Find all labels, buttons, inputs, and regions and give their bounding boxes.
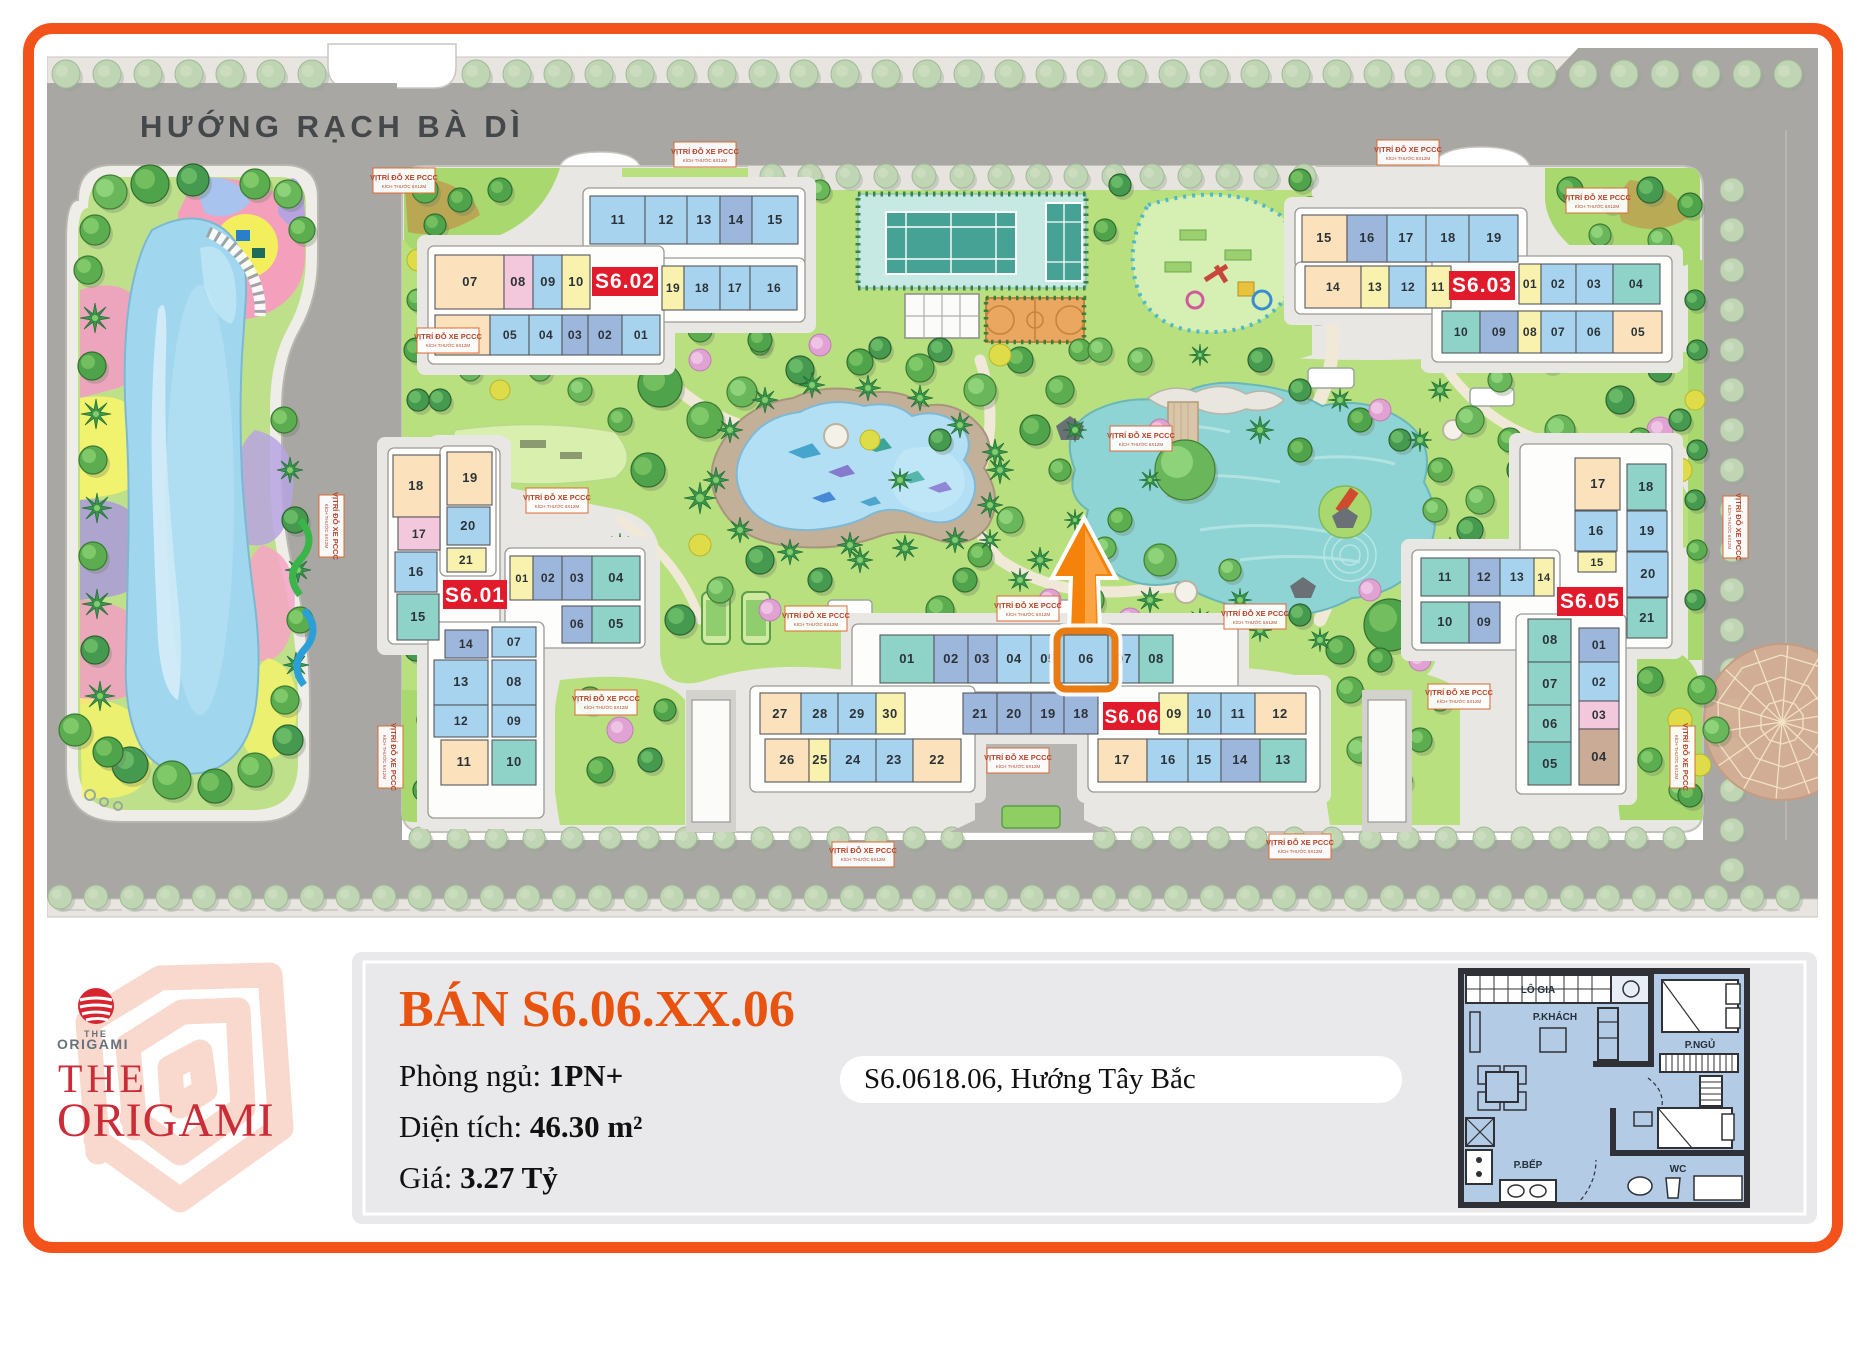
svg-text:09: 09 xyxy=(1166,706,1181,721)
svg-text:08: 08 xyxy=(1523,325,1537,339)
svg-text:VỊTRÍ ĐỖ XE PCCC: VỊTRÍ ĐỖ XE PCCC xyxy=(389,723,398,792)
svg-text:S6.02: S6.02 xyxy=(595,270,655,293)
svg-text:29: 29 xyxy=(849,706,864,721)
svg-text:VỊTRÍ ĐỖ XE PCCC: VỊTRÍ ĐỖ XE PCCC xyxy=(1107,431,1176,440)
svg-text:11: 11 xyxy=(1231,706,1246,721)
svg-text:19: 19 xyxy=(1486,230,1501,245)
svg-text:24: 24 xyxy=(845,752,861,767)
svg-text:12: 12 xyxy=(1477,570,1491,584)
svg-text:17: 17 xyxy=(1398,230,1413,245)
svg-text:17: 17 xyxy=(412,527,426,541)
svg-text:16: 16 xyxy=(767,281,781,295)
svg-text:23: 23 xyxy=(886,752,901,767)
svg-text:13: 13 xyxy=(1510,570,1524,584)
svg-text:14: 14 xyxy=(1326,280,1340,294)
svg-text:KÍCH THƯỚC 6X12M: KÍCH THƯỚC 6X12M xyxy=(382,183,427,189)
svg-text:12: 12 xyxy=(1272,706,1287,721)
svg-text:16: 16 xyxy=(1160,752,1175,767)
svg-text:12: 12 xyxy=(1401,280,1415,294)
svg-text:Diện tích: 46.30 m²: Diện tích: 46.30 m² xyxy=(399,1109,642,1144)
svg-text:09: 09 xyxy=(507,714,521,728)
svg-text:08: 08 xyxy=(510,274,525,289)
svg-text:VỊTRÍ ĐỖ XE PCCC: VỊTRÍ ĐỖ XE PCCC xyxy=(572,694,641,703)
svg-text:13: 13 xyxy=(1275,752,1290,767)
svg-text:13: 13 xyxy=(1368,280,1382,294)
svg-text:VỊTRÍ ĐỖ XE PCCC: VỊTRÍ ĐỖ XE PCCC xyxy=(1734,493,1743,562)
svg-text:VỊTRÍ ĐỖ XE PCCC: VỊTRÍ ĐỖ XE PCCC xyxy=(414,332,483,341)
svg-text:06: 06 xyxy=(1587,325,1601,339)
svg-text:08: 08 xyxy=(1542,632,1557,647)
svg-text:VỊTRÍ ĐỖ XE PCCC: VỊTRÍ ĐỖ XE PCCC xyxy=(523,493,592,502)
svg-text:KÍCH THƯỚC 6X12M: KÍCH THƯỚC 6X12M xyxy=(1119,441,1164,447)
svg-text:KÍCH THƯỚC 6X12M: KÍCH THƯỚC 6X12M xyxy=(324,504,330,549)
svg-text:22: 22 xyxy=(929,752,944,767)
svg-text:27: 27 xyxy=(772,706,787,721)
svg-text:VỊTRÍ ĐỖ XE PCCC: VỊTRÍ ĐỖ XE PCCC xyxy=(1266,838,1335,847)
svg-text:19: 19 xyxy=(1040,706,1055,721)
svg-text:07: 07 xyxy=(507,635,521,649)
svg-text:10: 10 xyxy=(1196,706,1211,721)
svg-text:04: 04 xyxy=(539,328,553,342)
svg-text:09: 09 xyxy=(540,274,555,289)
svg-text:19: 19 xyxy=(666,281,680,295)
svg-text:ORIGAMI: ORIGAMI xyxy=(57,1094,275,1147)
svg-text:KÍCH THƯỚC 6X12M: KÍCH THƯỚC 6X12M xyxy=(426,342,471,348)
svg-text:KÍCH THƯỚC 6X12M: KÍCH THƯỚC 6X12M xyxy=(535,503,580,509)
svg-text:S6.01: S6.01 xyxy=(445,584,505,607)
svg-text:18: 18 xyxy=(1073,706,1088,721)
svg-text:KÍCH THƯỚC 6X12M: KÍCH THƯỚC 6X12M xyxy=(1278,848,1323,854)
svg-text:15: 15 xyxy=(1590,557,1603,569)
svg-text:07: 07 xyxy=(1551,325,1565,339)
svg-text:18: 18 xyxy=(695,281,709,295)
svg-text:04: 04 xyxy=(1591,749,1607,764)
svg-text:05: 05 xyxy=(1631,325,1645,339)
svg-text:02: 02 xyxy=(598,328,612,342)
svg-text:S6.03: S6.03 xyxy=(1452,274,1512,297)
svg-text:18: 18 xyxy=(408,478,423,493)
svg-text:BÁN S6.06.XX.06: BÁN S6.06.XX.06 xyxy=(399,980,795,1038)
svg-text:S6.05: S6.05 xyxy=(1560,590,1620,613)
svg-text:02: 02 xyxy=(1551,277,1565,291)
svg-text:14: 14 xyxy=(1537,572,1551,584)
svg-text:17: 17 xyxy=(1114,752,1129,767)
svg-text:KÍCH THƯỚC 6X12M: KÍCH THƯỚC 6X12M xyxy=(1437,698,1482,704)
svg-text:WC: WC xyxy=(1670,1164,1687,1175)
svg-text:KÍCH THƯỚC 6X12M: KÍCH THƯỚC 6X12M xyxy=(996,763,1041,769)
svg-text:KÍCH THƯỚC 6X12M: KÍCH THƯỚC 6X12M xyxy=(584,704,629,710)
svg-text:08: 08 xyxy=(506,674,521,689)
svg-text:11: 11 xyxy=(1438,570,1452,584)
svg-text:01: 01 xyxy=(899,651,914,666)
svg-text:18: 18 xyxy=(1638,479,1653,494)
svg-text:Phòng ngủ: 1PN+: Phòng ngủ: 1PN+ xyxy=(399,1058,623,1093)
svg-text:P.BẾP: P.BẾP xyxy=(1514,1158,1543,1171)
svg-text:10: 10 xyxy=(568,274,583,289)
svg-text:03: 03 xyxy=(1587,277,1601,291)
svg-text:06: 06 xyxy=(1078,651,1093,666)
svg-text:12: 12 xyxy=(454,714,468,728)
svg-text:09: 09 xyxy=(1492,325,1506,339)
svg-text:KÍCH THƯỚC 6X12M: KÍCH THƯỚC 6X12M xyxy=(1233,619,1278,625)
svg-text:VỊTRÍ ĐỖ XE PCCC: VỊTRÍ ĐỖ XE PCCC xyxy=(1374,145,1443,154)
svg-text:08: 08 xyxy=(1148,651,1163,666)
svg-text:VỊTRÍ ĐỖ XE PCCC: VỊTRÍ ĐỖ XE PCCC xyxy=(829,846,898,855)
svg-text:19: 19 xyxy=(1639,523,1654,538)
svg-text:KÍCH THƯỚC 6X12M: KÍCH THƯỚC 6X12M xyxy=(382,735,388,780)
svg-text:15: 15 xyxy=(767,212,782,227)
svg-text:06: 06 xyxy=(570,617,584,631)
svg-text:04: 04 xyxy=(1006,651,1022,666)
svg-text:17: 17 xyxy=(1590,476,1605,491)
svg-text:VỊTRÍ ĐỖ XE PCCC: VỊTRÍ ĐỖ XE PCCC xyxy=(1681,723,1690,792)
svg-text:10: 10 xyxy=(1454,325,1468,339)
svg-text:21: 21 xyxy=(1639,610,1654,625)
svg-text:16: 16 xyxy=(408,564,423,579)
svg-text:09: 09 xyxy=(1477,615,1491,629)
svg-text:03: 03 xyxy=(1592,708,1606,722)
svg-text:06: 06 xyxy=(1542,716,1557,731)
svg-text:02: 02 xyxy=(541,571,555,585)
svg-text:VỊTRÍ ĐỖ XE PCCC: VỊTRÍ ĐỖ XE PCCC xyxy=(671,147,740,156)
svg-text:02: 02 xyxy=(1592,675,1606,689)
svg-text:P.KHÁCH: P.KHÁCH xyxy=(1533,1010,1577,1023)
svg-text:P.NGỦ: P.NGỦ xyxy=(1685,1038,1715,1051)
svg-text:11: 11 xyxy=(611,212,626,227)
svg-text:05: 05 xyxy=(503,328,517,342)
svg-text:10: 10 xyxy=(506,754,521,769)
svg-text:14: 14 xyxy=(728,212,744,227)
svg-text:14: 14 xyxy=(459,637,473,651)
svg-text:03: 03 xyxy=(570,571,584,585)
svg-text:S6.0618.06, Hướng Tây Bắc: S6.0618.06, Hướng Tây Bắc xyxy=(864,1063,1196,1095)
svg-text:S6.06: S6.06 xyxy=(1105,707,1160,728)
svg-text:VỊTRÍ ĐỖ XE PCCC: VỊTRÍ ĐỖ XE PCCC xyxy=(1221,609,1290,618)
svg-text:01: 01 xyxy=(515,573,528,585)
svg-text:16: 16 xyxy=(1588,523,1603,538)
svg-text:20: 20 xyxy=(460,518,475,533)
svg-text:KÍCH THƯỚC 6X12M: KÍCH THƯỚC 6X12M xyxy=(1006,611,1051,617)
svg-text:KÍCH THƯỚC 6X12M: KÍCH THƯỚC 6X12M xyxy=(1727,505,1733,550)
svg-text:01: 01 xyxy=(634,328,648,342)
svg-text:15: 15 xyxy=(410,609,425,624)
svg-text:KÍCH THƯỚC 6X12M: KÍCH THƯỚC 6X12M xyxy=(1674,735,1680,780)
svg-text:LÔ GIA: LÔ GIA xyxy=(1521,983,1555,996)
svg-text:01: 01 xyxy=(1592,638,1606,652)
svg-text:12: 12 xyxy=(658,212,673,227)
svg-text:KÍCH THƯỚC 6X12M: KÍCH THƯỚC 6X12M xyxy=(841,856,886,862)
svg-text:07: 07 xyxy=(462,274,477,289)
svg-text:03: 03 xyxy=(568,328,582,342)
svg-text:21: 21 xyxy=(972,706,987,721)
svg-text:21: 21 xyxy=(459,553,473,567)
svg-text:VỊTRÍ ĐỖ XE PCCC: VỊTRÍ ĐỖ XE PCCC xyxy=(1425,688,1494,697)
svg-text:15: 15 xyxy=(1316,230,1331,245)
svg-text:05: 05 xyxy=(1542,756,1557,771)
svg-text:25: 25 xyxy=(812,752,827,767)
svg-text:KÍCH THƯỚC 6X12M: KÍCH THƯỚC 6X12M xyxy=(794,621,839,627)
svg-text:04: 04 xyxy=(608,570,624,585)
svg-text:Giá: 3.27 Tỷ: Giá: 3.27 Tỷ xyxy=(399,1160,558,1195)
svg-text:15: 15 xyxy=(1196,752,1211,767)
svg-text:10: 10 xyxy=(1437,614,1452,629)
svg-text:VỊTRÍ ĐỖ XE PCCC: VỊTRÍ ĐỖ XE PCCC xyxy=(370,173,439,182)
svg-text:16: 16 xyxy=(1359,230,1374,245)
svg-text:30: 30 xyxy=(882,706,897,721)
svg-text:11: 11 xyxy=(1431,280,1445,294)
svg-text:KÍCH THƯỚC 6X12M: KÍCH THƯỚC 6X12M xyxy=(1386,155,1431,161)
svg-text:05: 05 xyxy=(608,616,623,631)
svg-text:19: 19 xyxy=(462,470,477,485)
svg-text:20: 20 xyxy=(1640,566,1655,581)
svg-text:04: 04 xyxy=(1629,277,1643,291)
svg-text:13: 13 xyxy=(696,212,711,227)
svg-text:01: 01 xyxy=(1523,277,1537,291)
svg-text:26: 26 xyxy=(779,752,794,767)
svg-text:ORIGAMI: ORIGAMI xyxy=(57,1036,129,1052)
svg-text:13: 13 xyxy=(453,674,468,689)
svg-text:14: 14 xyxy=(1232,752,1248,767)
svg-text:07: 07 xyxy=(1542,676,1557,691)
svg-text:03: 03 xyxy=(974,651,989,666)
svg-text:KÍCH THƯỚC 6X12M: KÍCH THƯỚC 6X12M xyxy=(683,157,728,163)
svg-text:VỊTRÍ ĐỖ XE PCCC: VỊTRÍ ĐỖ XE PCCC xyxy=(782,611,851,620)
svg-text:VỊTRÍ ĐỖ XE PCCC: VỊTRÍ ĐỖ XE PCCC xyxy=(1563,193,1632,202)
svg-text:VỊTRÍ ĐỖ XE PCCC: VỊTRÍ ĐỖ XE PCCC xyxy=(331,492,340,561)
svg-text:18: 18 xyxy=(1440,230,1455,245)
svg-text:VỊTRÍ ĐỖ XE PCCC: VỊTRÍ ĐỖ XE PCCC xyxy=(994,601,1063,610)
svg-text:20: 20 xyxy=(1006,706,1021,721)
svg-text:KÍCH THƯỚC 6X12M: KÍCH THƯỚC 6X12M xyxy=(1575,203,1620,209)
svg-text:02: 02 xyxy=(943,651,958,666)
svg-text:28: 28 xyxy=(812,706,827,721)
svg-text:11: 11 xyxy=(457,754,472,769)
svg-text:HƯỚNG RẠCH BÀ DÌ: HƯỚNG RẠCH BÀ DÌ xyxy=(140,108,524,144)
svg-text:17: 17 xyxy=(728,281,742,295)
svg-text:VỊTRÍ ĐỖ XE PCCC: VỊTRÍ ĐỖ XE PCCC xyxy=(984,753,1053,762)
